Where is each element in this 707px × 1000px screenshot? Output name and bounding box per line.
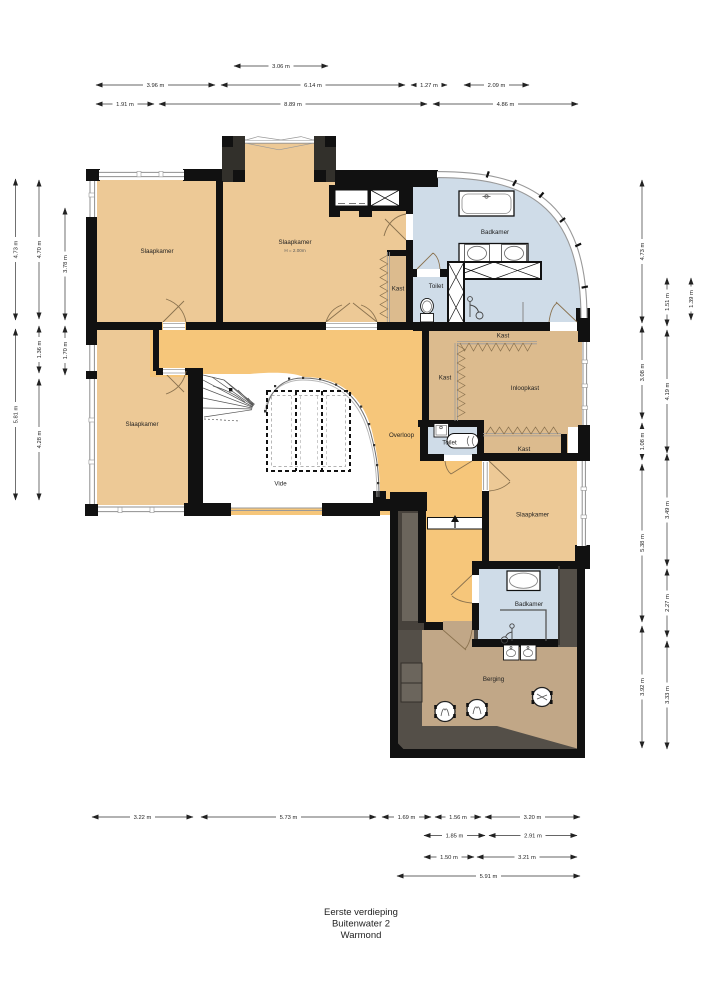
svg-text:1.51 m: 1.51 m xyxy=(665,293,671,311)
svg-text:Slaapkamer: Slaapkamer xyxy=(516,512,549,519)
svg-text:Slaapkamer: Slaapkamer xyxy=(125,421,158,428)
svg-text:Kast: Kast xyxy=(392,286,405,293)
svg-text:3.20 m: 3.20 m xyxy=(524,815,542,821)
svg-text:Kast: Kast xyxy=(497,333,510,340)
svg-text:5.91 m: 5.91 m xyxy=(480,874,498,880)
svg-text:1.39 m: 1.39 m xyxy=(689,290,695,308)
svg-text:4.19 m: 4.19 m xyxy=(665,382,671,400)
svg-text:Badkamer: Badkamer xyxy=(481,229,509,236)
svg-text:6.14 m: 6.14 m xyxy=(304,83,322,89)
svg-text:Kast: Kast xyxy=(518,446,531,453)
svg-text:3.78 m: 3.78 m xyxy=(63,255,69,273)
svg-text:1.56 m: 1.56 m xyxy=(449,815,467,821)
svg-text:3.49 m: 3.49 m xyxy=(665,501,671,519)
svg-text:Slaapkamer: Slaapkamer xyxy=(140,248,173,255)
svg-text:3.92 m: 3.92 m xyxy=(640,678,646,696)
svg-text:Buitenwater 2: Buitenwater 2 xyxy=(332,919,390,930)
svg-text:Eerste verdieping: Eerste verdieping xyxy=(324,907,398,918)
svg-text:Vide: Vide xyxy=(274,481,287,488)
svg-text:Slaapkamer: Slaapkamer xyxy=(278,239,311,246)
svg-text:5.38 m: 5.38 m xyxy=(640,534,646,552)
svg-text:2.91 m: 2.91 m xyxy=(524,834,542,840)
svg-text:3.33 m: 3.33 m xyxy=(665,686,671,704)
svg-text:4.73 m: 4.73 m xyxy=(14,240,20,258)
svg-text:1.27 m: 1.27 m xyxy=(420,83,438,89)
svg-text:2.27 m: 2.27 m xyxy=(665,594,671,612)
svg-text:Badkamer: Badkamer xyxy=(515,601,543,608)
svg-text:4.73 m: 4.73 m xyxy=(640,242,646,260)
svg-text:Overloop: Overloop xyxy=(389,432,415,439)
svg-text:Toilet: Toilet xyxy=(442,440,457,447)
svg-text:Berging: Berging xyxy=(483,676,505,683)
svg-text:H = 2.00m: H = 2.00m xyxy=(284,248,305,253)
svg-text:1.85 m: 1.85 m xyxy=(446,834,464,840)
svg-text:Warmond: Warmond xyxy=(341,930,382,941)
svg-text:3.22 m: 3.22 m xyxy=(134,815,152,821)
svg-text:5.81 m: 5.81 m xyxy=(14,405,20,423)
svg-text:3.21 m: 3.21 m xyxy=(518,855,536,861)
svg-text:1.91 m: 1.91 m xyxy=(116,102,134,108)
svg-text:1.70 m: 1.70 m xyxy=(63,341,69,359)
svg-text:1.50 m: 1.50 m xyxy=(440,855,458,861)
svg-text:3.08 m: 3.08 m xyxy=(640,363,646,381)
svg-text:3.96 m: 3.96 m xyxy=(147,83,165,89)
svg-text:8.89 m: 8.89 m xyxy=(284,102,302,108)
svg-text:1.69 m: 1.69 m xyxy=(398,815,416,821)
svg-text:4.86 m: 4.86 m xyxy=(497,102,515,108)
svg-text:2.09 m: 2.09 m xyxy=(488,83,506,89)
svg-text:4.28 m: 4.28 m xyxy=(37,430,43,448)
svg-text:1.08 m: 1.08 m xyxy=(640,432,646,450)
svg-text:5.73 m: 5.73 m xyxy=(280,815,298,821)
svg-text:3.06 m: 3.06 m xyxy=(272,64,290,70)
svg-text:Inloopkast: Inloopkast xyxy=(511,385,539,392)
svg-text:Kast: Kast xyxy=(439,375,452,382)
svg-text:1.36 m: 1.36 m xyxy=(37,340,43,358)
svg-text:4.70 m: 4.70 m xyxy=(37,240,43,258)
svg-text:Toilet: Toilet xyxy=(429,283,444,290)
